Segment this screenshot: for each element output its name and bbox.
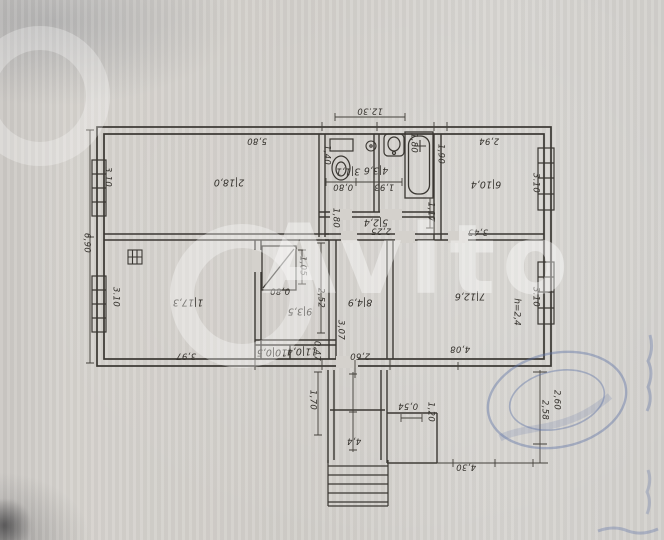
room-label: 9|3,5 — [288, 306, 312, 317]
dimension-label: 2,58 — [540, 400, 550, 420]
room-label: 11|0,4 — [287, 346, 317, 357]
dimension-label: 3,45 — [468, 227, 488, 237]
dimension-label: 2,52 — [316, 288, 326, 308]
scanned-floor-plan: 12.305,802,943.106,903.101,903.103.101,4… — [0, 0, 664, 540]
dimension-label: 4,4 — [347, 436, 361, 446]
stove-icon — [128, 250, 142, 264]
floor-plan-svg: 12.305,802,943.106,903.101,903.103.101,4… — [0, 0, 664, 540]
room-label: 2|18,0 — [214, 177, 244, 188]
dimension-label: 12.30 — [357, 106, 383, 116]
porch-walls — [328, 370, 437, 463]
dimension-label: 0,80 — [333, 182, 353, 192]
dimension-label: 1,93 — [374, 182, 394, 192]
dimension-label: 3.10 — [531, 287, 541, 307]
margin-ink-marks — [598, 335, 658, 533]
dimension-label: 1,05 — [298, 256, 308, 276]
dimension-label: 3.10 — [103, 167, 113, 187]
room-label: 4|3,6 — [364, 165, 388, 176]
dimension-label: 1,90 — [436, 144, 446, 164]
sink-icon — [384, 134, 404, 156]
wardrobe-icon — [262, 246, 296, 290]
partition-walls — [104, 134, 544, 359]
room-label: 10|0,5 — [257, 347, 287, 358]
dimension-label: 1,17 — [426, 202, 436, 222]
dimension-label: 1,40 — [322, 145, 332, 165]
dimension-label: 1,70 — [308, 390, 318, 410]
room-label: 6|10,4 — [471, 179, 501, 190]
dimension-label: 3,97 — [176, 351, 196, 361]
dimension-label: 4,08 — [450, 344, 470, 354]
dimension-label: 1,80 — [331, 208, 341, 228]
dimension-label: 5,80 — [247, 136, 267, 146]
room-label: 1|17,3 — [173, 297, 203, 308]
room-label: 3|1,1 — [336, 166, 360, 177]
dimension-label: 3,07 — [336, 320, 346, 340]
stairs-icon — [328, 460, 388, 506]
dimension-label: 3.10 — [111, 287, 121, 307]
dimension-label: 4,30 — [456, 462, 476, 472]
dimension-label: 2,60 — [350, 351, 370, 361]
height-note: h=2,4 — [512, 298, 522, 326]
dimension-label: 6,90 — [82, 233, 92, 253]
room-label: 8|4,9 — [348, 297, 372, 308]
dimension-label: 0,54 — [398, 401, 418, 411]
room-label: 5|2,4 — [364, 217, 388, 228]
dimension-label: 1,20 — [426, 402, 436, 422]
room-label: 7|12,6 — [455, 291, 485, 302]
dimension-label: 3.10 — [531, 173, 541, 193]
dimension-label: 0,80 — [270, 286, 290, 296]
dimension-label: 1,80 — [409, 133, 419, 153]
dimension-label: 2,94 — [479, 136, 499, 146]
dimension-label: 2,60 — [552, 390, 562, 410]
